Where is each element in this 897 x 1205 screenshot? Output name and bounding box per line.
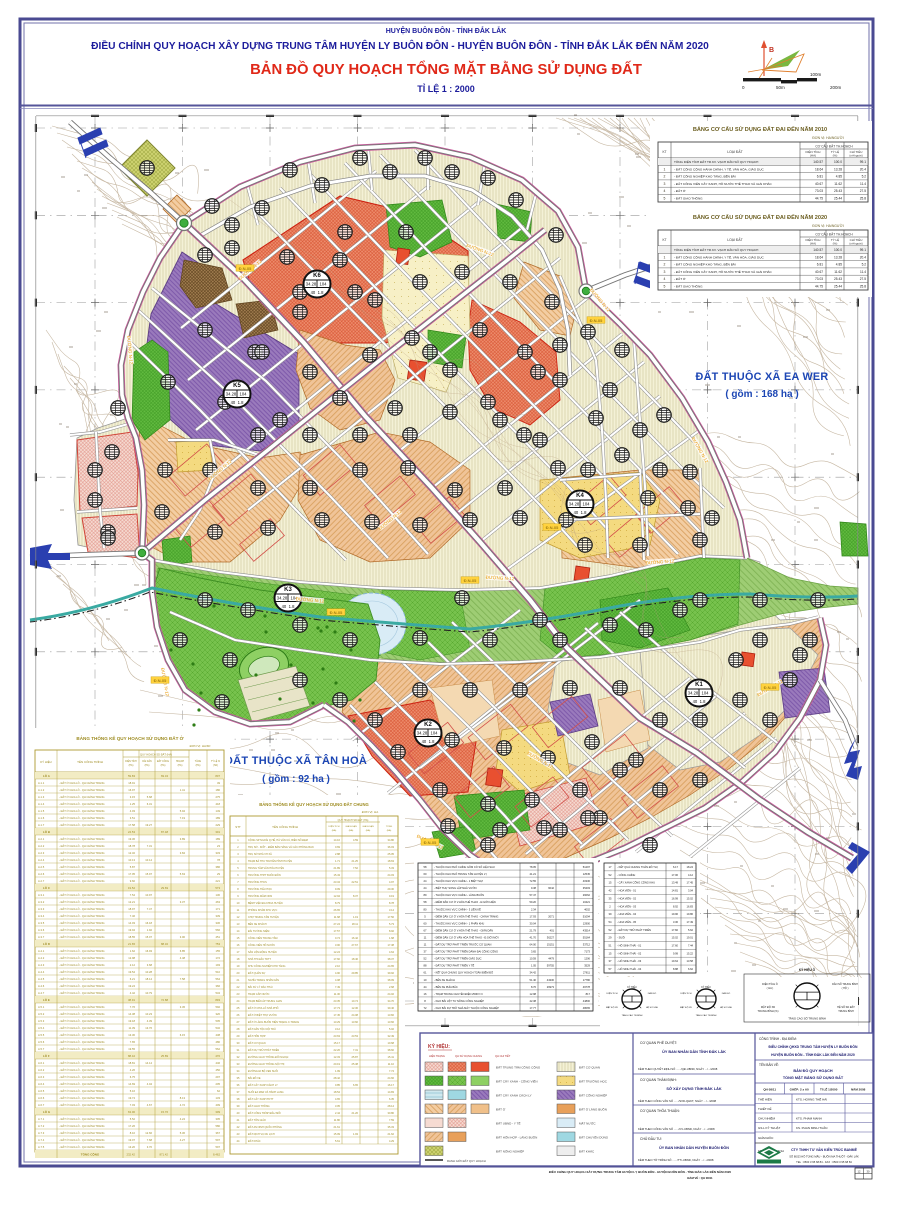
svg-text:49: 49	[217, 781, 220, 785]
svg-text:ĐƯỜNG GIAO THÔNG NỘI THỊ: ĐƯỜNG GIAO THÔNG NỘI THỊ	[248, 1063, 285, 1066]
svg-text:12.24: 12.24	[334, 950, 341, 954]
svg-text:A.2.7: A.2.7	[38, 879, 45, 883]
svg-text:A.6.5: A.6.5	[38, 1089, 45, 1093]
svg-text:5.2: 5.2	[862, 263, 867, 267]
svg-text:6042: 6042	[548, 886, 554, 890]
svg-text:149: 149	[216, 809, 221, 813]
svg-text:4.04: 4.04	[147, 1082, 153, 1086]
svg-text:- ĐẤT CÔNG NGHIỆP KHO TÀNG, BẾ: - ĐẤT CÔNG NGHIỆP KHO TÀNG, BẾN BÃI	[674, 174, 736, 179]
svg-text:10.97: 10.97	[145, 893, 152, 897]
svg-text:72: 72	[424, 1006, 427, 1010]
svg-text:0.85: 0.85	[335, 1083, 341, 1087]
svg-text:15.09: 15.09	[334, 1132, 341, 1136]
svg-text:193: 193	[216, 963, 221, 967]
svg-text:130: 130	[216, 893, 221, 897]
svg-text:63.00: 63.00	[128, 1110, 135, 1114]
svg-text:52: 52	[609, 873, 612, 877]
svg-text:19.52: 19.52	[128, 886, 135, 890]
svg-text:34.70: 34.70	[388, 999, 395, 1003]
svg-text:19.74: 19.74	[128, 1096, 135, 1100]
svg-text:( gồm : 168 ha ): ( gồm : 168 ha )	[725, 388, 798, 400]
svg-text:3.89: 3.89	[180, 837, 186, 841]
svg-text:ĐƯỜNG GIAO THÔNG ĐỐI NGOẠI: ĐƯỜNG GIAO THÔNG ĐỐI NGOẠI	[248, 1056, 289, 1059]
svg-text:566: 566	[216, 928, 221, 932]
svg-text:15151: 15151	[547, 943, 555, 947]
svg-text:( gồm : 92 ha ): ( gồm : 92 ha )	[262, 773, 330, 785]
svg-text:HUYỆN BUÔN ĐÔN - TỈNH ĐẮK LẮK: HUYỆN BUÔN ĐÔN - TỈNH ĐẮK LẮK	[386, 26, 507, 35]
svg-text:A.5.5: A.5.5	[38, 1033, 45, 1037]
svg-text:25.87: 25.87	[352, 1055, 359, 1059]
svg-text:10.74: 10.74	[352, 999, 359, 1003]
svg-text:2.68: 2.68	[389, 985, 395, 989]
svg-text:11: 11	[424, 943, 427, 947]
svg-text:8.37: 8.37	[353, 894, 359, 898]
svg-text:4.39: 4.39	[147, 1019, 153, 1023]
svg-text:73.03: 73.03	[815, 189, 823, 193]
svg-text:HUYỆN BUÔN ĐÔN - TỈNH ĐẮK LẮK: HUYỆN BUÔN ĐÔN - TỈNH ĐẮK LẮK ĐẾN NĂM 20…	[771, 1052, 855, 1057]
svg-text:LÔ D: LÔ D	[43, 941, 50, 946]
svg-text:- ĐẤT CÔNG VIÊN CÂY XANH, HỒ N: - ĐẤT CÔNG VIÊN CÂY XANH, HỒ NƯỚC THỂ TH…	[674, 269, 772, 274]
svg-text:TỔNG CỘNG: TỔNG CỘNG	[81, 1152, 100, 1157]
svg-text:18.24: 18.24	[687, 865, 694, 869]
svg-text:13.20: 13.20	[128, 1145, 135, 1149]
svg-text:ĐƠN VỊ: HA: ĐƠN VỊ: HA	[362, 810, 378, 814]
svg-text:10.59: 10.59	[530, 957, 537, 961]
svg-text:18.91: 18.91	[128, 781, 135, 785]
svg-text:MẬT ĐỘ XD: MẬT ĐỘ XD	[606, 1006, 619, 1009]
svg-text:44.75: 44.75	[815, 197, 823, 201]
svg-text:LÔ G: LÔ G	[43, 1109, 51, 1114]
svg-text:6.62: 6.62	[688, 967, 694, 971]
svg-text:CHỦ NHIỆM: CHỦ NHIỆM	[758, 1116, 776, 1121]
svg-text:ĐẤT CHUYÊN DÙNG: ĐẤT CHUYÊN DÙNG	[579, 1135, 609, 1140]
svg-text:505: 505	[216, 1019, 221, 1023]
svg-text:172: 172	[216, 956, 221, 960]
svg-text:51: 51	[609, 944, 612, 948]
svg-text:401: 401	[550, 928, 555, 932]
svg-text:BẢNG CƠ CẤU SỬ DỤNG ĐẤT ĐAI ĐẾ: BẢNG CƠ CẤU SỬ DỤNG ĐẤT ĐAI ĐẾN NĂM 2010	[693, 126, 827, 133]
svg-text:38.37: 38.37	[388, 957, 395, 961]
svg-text:8.92: 8.92	[673, 904, 679, 908]
svg-text:4.85: 4.85	[836, 263, 842, 267]
svg-text:232.42: 232.42	[126, 1153, 135, 1157]
svg-text:29: 29	[609, 936, 612, 940]
svg-text:16: 16	[424, 992, 427, 996]
svg-text:60: 60	[424, 921, 427, 925]
svg-text:A.7.2: A.7.2	[38, 1124, 45, 1128]
svg-text:18.46: 18.46	[352, 957, 359, 961]
svg-text:40 1.8: 40 1.8	[311, 290, 324, 295]
svg-text:25.05: 25.05	[388, 852, 395, 856]
svg-text:57: 57	[609, 967, 612, 971]
svg-text:60: 60	[424, 872, 427, 876]
svg-text:TRUNG BÌNH (%): TRUNG BÌNH (%)	[758, 1009, 779, 1013]
svg-text:5.16: 5.16	[130, 1089, 136, 1093]
svg-text:MẬT ĐỘ XD: MẬT ĐỘ XD	[680, 1006, 693, 1009]
svg-text:TỶ LỆ %: TỶ LỆ %	[211, 760, 220, 763]
svg-text:27.5: 27.5	[860, 277, 866, 281]
svg-text:THỂ HIỆN: THỂ HIỆN	[758, 1097, 772, 1102]
svg-text:BẢNG THỐNG KÊ QUY HOẠCH SỬ DỤN: BẢNG THỐNG KÊ QUY HOẠCH SỬ DỤNG ĐẤT CHUN…	[259, 802, 368, 807]
svg-text:13.76: 13.76	[145, 1026, 152, 1030]
svg-text:8.79: 8.79	[335, 901, 341, 905]
svg-text:6.65: 6.65	[353, 1083, 359, 1087]
svg-text:38.09: 38.09	[388, 978, 395, 982]
svg-text:99.1: 99.1	[860, 160, 866, 164]
svg-text:(HA): (HA)	[387, 829, 392, 832]
svg-text:5.87: 5.87	[130, 865, 136, 869]
svg-text:5.33: 5.33	[389, 866, 395, 870]
svg-text:11.68: 11.68	[334, 915, 341, 919]
svg-text:58: 58	[424, 865, 427, 869]
svg-text:25.89: 25.89	[161, 1054, 168, 1058]
svg-text:TỔNG: TỔNG	[386, 825, 393, 828]
svg-text:1.68: 1.68	[389, 936, 395, 940]
svg-text:(%): (%)	[833, 154, 838, 158]
svg-text:BẢNG CƠ CẤU SỬ DỤNG ĐẤT ĐAI ĐẾ: BẢNG CƠ CẤU SỬ DỤNG ĐẤT ĐAI ĐẾN NĂM 2020	[693, 214, 827, 221]
svg-text:34.28: 34.28	[417, 731, 428, 736]
svg-text:ĐẤT CƠ QUAN: ĐẤT CƠ QUAN	[579, 1065, 600, 1070]
svg-text:450: 450	[216, 1068, 221, 1072]
svg-text:KS. PHAN MINH TUẤN: KS. PHAN MINH TUẤN	[796, 1125, 827, 1130]
svg-text:ĐẤT THUỘC XÃ EA WER: ĐẤT THUỘC XÃ EA WER	[695, 370, 828, 383]
svg-text:19.24: 19.24	[128, 984, 135, 988]
svg-text:1206: 1206	[584, 957, 590, 961]
svg-text:39: 39	[609, 912, 612, 916]
svg-text:19.54: 19.54	[128, 970, 135, 974]
svg-text:ĐÀI TƯỞNG NIỆM: ĐÀI TƯỞNG NIỆM	[248, 930, 269, 933]
svg-text:16.99: 16.99	[672, 896, 679, 900]
svg-text:64.00: 64.00	[530, 943, 537, 947]
svg-text:4.64: 4.64	[389, 950, 395, 954]
svg-text:480: 480	[216, 1040, 221, 1044]
svg-text:205: 205	[216, 1082, 221, 1086]
svg-text:18.11: 18.11	[352, 922, 359, 926]
svg-text:320: 320	[216, 1012, 221, 1016]
svg-text:2: 2	[664, 263, 666, 267]
svg-text:ĐẤT Ở LÀNG BUÔN HIỆN TRẠNG C.T: ĐẤT Ở LÀNG BUÔN HIỆN TRẠNG C.TRANG	[248, 1021, 299, 1024]
svg-text:TÊN CÔNG TRÌNH: TÊN CÔNG TRÌNH	[272, 824, 298, 829]
svg-text:TÊN BẢN VẼ:: TÊN BẢN VẼ:	[759, 1062, 779, 1067]
svg-text:42: 42	[609, 889, 612, 893]
svg-text:6.81: 6.81	[817, 263, 823, 267]
svg-text:ĐẤT DỰ TRỮ PHÁT TRIỂN: ĐẤT DỰ TRỮ PHÁT TRIỂN	[248, 1049, 279, 1052]
svg-text:12.32: 12.32	[128, 851, 135, 855]
svg-text:5.94: 5.94	[180, 809, 186, 813]
svg-text:(m²/người): (m²/người)	[849, 154, 862, 158]
svg-text:ĐẤT CƠ QUAN: ĐẤT CƠ QUAN	[248, 1042, 266, 1045]
svg-text:5: 5	[664, 285, 666, 289]
svg-text:ĐƠN VỊ: HA/NGƯỜI: ĐƠN VỊ: HA/NGƯỜI	[812, 223, 843, 228]
svg-text:29: 29	[217, 872, 220, 876]
svg-text:221: 221	[216, 879, 221, 883]
svg-text:SÂN VẬN ĐỘNG HUYỆN: SÂN VẬN ĐỘNG HUYỆN	[248, 951, 277, 954]
svg-text:58: 58	[424, 900, 427, 904]
svg-text:3: 3	[664, 270, 666, 274]
svg-text:HỆ SỐ SDĐ: HỆ SỐ SDĐ	[646, 1006, 658, 1009]
svg-text:HỆ SỐ SDĐ: HỆ SỐ SDĐ	[720, 1006, 732, 1009]
svg-text:A.7.1: A.7.1	[38, 1117, 45, 1121]
svg-text:11.39: 11.39	[128, 1026, 135, 1030]
svg-text:11.80: 11.80	[334, 1118, 341, 1122]
svg-text:15: 15	[609, 881, 612, 885]
svg-text:893: 893	[215, 998, 220, 1002]
svg-text:6.21: 6.21	[130, 977, 136, 981]
svg-text:TRẠM CẤP NƯỚC: TRẠM CẤP NƯỚC	[248, 993, 270, 996]
svg-text:GIAI ĐOẠN: GIAI ĐOẠN	[362, 825, 374, 828]
svg-text:4: 4	[664, 189, 666, 193]
svg-text:6.35: 6.35	[389, 1097, 395, 1101]
svg-text:1.05: 1.05	[531, 964, 537, 968]
svg-text:A.6.4: A.6.4	[38, 1082, 45, 1086]
svg-text:29.85: 29.85	[352, 971, 359, 975]
svg-text:78: 78	[217, 858, 220, 862]
svg-text:73.03: 73.03	[815, 277, 823, 281]
svg-text:229: 229	[216, 823, 221, 827]
svg-text:6.81: 6.81	[817, 175, 823, 179]
svg-text:34.28: 34.28	[688, 691, 699, 696]
svg-text:17: 17	[609, 865, 612, 869]
svg-text:SỞ XÂY DỰNG TỈNH ĐẮK LẮK: SỞ XÂY DỰNG TỈNH ĐẮK LẮK	[666, 1086, 722, 1091]
svg-text:13.29: 13.29	[334, 1020, 341, 1024]
svg-text:24.66: 24.66	[388, 1076, 395, 1080]
svg-text:BẢNG THỐNG KÊ QUY HOẠCH SỬ DỤN: BẢNG THỐNG KÊ QUY HOẠCH SỬ DỤNG ĐẤT Ở	[76, 734, 183, 741]
svg-text:A.6.2: A.6.2	[38, 1068, 45, 1072]
svg-text:CỘNG SP NGOÀI Q.HẾ, HÀ VĂN CỦ,: CỘNG SP NGOÀI Q.HẾ, HÀ VĂN CỦ, BIỂN SỐ Đ…	[248, 839, 308, 842]
svg-text:( HỘ ): ( HỘ )	[842, 987, 849, 990]
svg-text:2.10: 2.10	[335, 964, 341, 968]
svg-text:KÈM THEO CÔNG VĂN SỐ ....../SX: KÈM THEO CÔNG VĂN SỐ ....../SXD-QHKT, NG…	[638, 1098, 717, 1103]
svg-text:TỔNG DIỆN TÍCH ĐẤT TR.KV. VẠCH: TỔNG DIỆN TÍCH ĐẤT TR.KV. VẠCH DẤN SỐ QU…	[674, 247, 758, 252]
svg-text:25.8: 25.8	[860, 285, 866, 289]
svg-text:19.94: 19.94	[128, 928, 135, 932]
svg-text:ỦY BAN NHÂN DÂN HUYỆN BUÔN ĐÔN: ỦY BAN NHÂN DÂN HUYỆN BUÔN ĐÔN	[659, 1145, 729, 1150]
svg-text:18.78: 18.78	[128, 844, 135, 848]
svg-text:A.5.1: A.5.1	[38, 1005, 45, 1009]
svg-text:6.31: 6.31	[147, 802, 153, 806]
svg-text:12.36: 12.36	[352, 1006, 359, 1010]
svg-text:Đ.N-05: Đ.N-05	[464, 578, 477, 583]
svg-text:2.44: 2.44	[335, 1111, 341, 1115]
svg-text:4.27: 4.27	[180, 1138, 186, 1142]
svg-text:(HA): (HA)	[810, 154, 816, 158]
svg-text:A.2.4: A.2.4	[38, 858, 45, 862]
svg-text:59755: 59755	[547, 964, 555, 968]
svg-text:TEL : 0500 3 95 68 84 - FAX :: TEL : 0500 3 95 68 84 - FAX : 0500 3 95 …	[796, 1160, 852, 1164]
svg-text:17.06: 17.06	[672, 873, 679, 877]
svg-text:5.63: 5.63	[180, 872, 186, 876]
svg-text:200m: 200m	[830, 85, 842, 90]
svg-text:A.4.7: A.4.7	[38, 991, 45, 995]
svg-text:A.1.4: A.1.4	[38, 802, 45, 806]
svg-text:15.41: 15.41	[388, 1055, 395, 1059]
svg-text:A.5.2: A.5.2	[38, 1012, 45, 1016]
svg-text:TẦNG CAO TR.BÌNH: TẦNG CAO TR.BÌNH	[622, 1014, 643, 1017]
svg-text:40.67: 40.67	[815, 270, 823, 274]
svg-text:15.76: 15.76	[161, 1110, 168, 1114]
svg-text:16.97: 16.97	[128, 788, 135, 792]
svg-text:(HA): (HA)	[178, 764, 183, 767]
svg-text:CTY TNHH TƯ VẤN KIẾN TRÚC BANM: CTY TNHH TƯ VẤN KIẾN TRÚC BANMÊ	[791, 1147, 858, 1152]
svg-text:A.3.2: A.3.2	[38, 900, 45, 904]
svg-text:2: 2	[664, 175, 666, 179]
svg-text:17.93: 17.93	[530, 914, 537, 918]
svg-text:CƠ CẤU ĐẤT TH.HOẠCH: CƠ CẤU ĐẤT TH.HOẠCH	[815, 145, 853, 149]
svg-text:339: 339	[216, 914, 221, 918]
svg-text:ĐIỀU CHỈNH QUY HOẠCH XÂY DỰNG: ĐIỀU CHỈNH QUY HOẠCH XÂY DỰNG TRUNG TÂM …	[549, 1169, 732, 1174]
svg-text:17.05: 17.05	[128, 872, 135, 876]
svg-text:21.79: 21.79	[530, 928, 537, 932]
svg-text:36.03: 36.03	[388, 845, 395, 849]
svg-text:BẢN ĐỒ QUY HOẠCH TỔNG MẶT BẰNG: BẢN ĐỒ QUY HOẠCH TỔNG MẶT BẰNG SỬ DỤNG Đ…	[250, 60, 642, 78]
svg-text:38.60: 38.60	[388, 1048, 395, 1052]
svg-text:10: 10	[424, 978, 427, 982]
svg-text:(HA): (HA)	[332, 829, 337, 832]
svg-text:ĐẤT DÂN TỘC NỘI TRÚ: ĐẤT DÂN TỘC NỘI TRÚ	[248, 1028, 276, 1031]
svg-text:510: 510	[216, 970, 221, 974]
svg-text:438: 438	[216, 1033, 221, 1037]
svg-text:TRƯỜNG THPT BUÔN ĐÔN: TRƯỜNG THPT BUÔN ĐÔN	[248, 874, 281, 877]
svg-text:TẦNG: TẦNG	[195, 760, 202, 763]
svg-text:32.49: 32.49	[388, 1034, 395, 1038]
svg-text:49778: 49778	[583, 985, 591, 989]
svg-text:41.70: 41.70	[530, 936, 537, 940]
svg-text:DÂN SỐ: DÂN SỐ	[722, 992, 731, 995]
svg-text:ĐẤT NÔNG NGHIỆP: ĐẤT NÔNG NGHIỆP	[496, 1149, 524, 1154]
svg-text:A.4.3: A.4.3	[38, 963, 45, 967]
svg-text:61: 61	[424, 971, 427, 975]
svg-text:4.67: 4.67	[147, 1103, 153, 1107]
svg-text:4.29: 4.29	[389, 1139, 395, 1143]
svg-text:40 1.8: 40 1.8	[282, 604, 295, 609]
svg-text:297: 297	[216, 1075, 221, 1079]
svg-text:6.15: 6.15	[180, 1033, 186, 1037]
svg-text:ĐẤT CÔNG TRÌNH ĐẦU MỐI: ĐẤT CÔNG TRÌNH ĐẦU MỐI	[248, 1112, 281, 1115]
svg-text:15.07: 15.07	[145, 935, 152, 939]
svg-text:17.77: 17.77	[530, 1006, 537, 1010]
svg-text:2.12: 2.12	[130, 963, 136, 967]
svg-text:171: 171	[216, 907, 221, 911]
svg-text:13.28: 13.28	[834, 167, 842, 171]
svg-text:ĐẤT HỖN HỢP - LÀNG BUÔN: ĐẤT HỖN HỢP - LÀNG BUÔN	[496, 1135, 537, 1140]
svg-text:LÔ B: LÔ B	[43, 829, 50, 834]
svg-text:3: 3	[664, 182, 666, 186]
svg-text:19.27: 19.27	[145, 823, 152, 827]
svg-text:4.48: 4.48	[180, 956, 186, 960]
svg-text:40336: 40336	[583, 879, 591, 883]
svg-text:333: 333	[216, 851, 221, 855]
svg-text:TRẠM BIẾN ÁP TRUNG GIAN: TRẠM BIẾN ÁP TRUNG GIAN	[248, 1000, 282, 1003]
svg-text:13.66: 13.66	[388, 1020, 395, 1024]
svg-text:44800: 44800	[583, 999, 591, 1003]
svg-text:88: 88	[424, 964, 427, 968]
svg-text:24.08: 24.08	[352, 1013, 359, 1017]
svg-text:18.54: 18.54	[334, 1090, 341, 1094]
svg-text:7.49: 7.49	[335, 985, 341, 989]
svg-text:ĐẤT CÂY XANH CÁCH LY: ĐẤT CÂY XANH CÁCH LY	[248, 1084, 278, 1087]
svg-text:- ĐẤT CÔNG CỘNG HÀNH CHÍNH, Y: - ĐẤT CÔNG CỘNG HÀNH CHÍNH, Y TẾ, VĂN HÓ…	[674, 254, 764, 259]
svg-text:8.462: 8.462	[213, 1153, 220, 1157]
svg-text:69.34: 69.34	[161, 774, 168, 778]
svg-text:27611: 27611	[583, 971, 591, 975]
svg-text:CÔNG VIÊN TRUNG TÂM: CÔNG VIÊN TRUNG TÂM	[248, 937, 278, 940]
svg-text:104: 104	[240, 392, 248, 397]
svg-text:A.2.5: A.2.5	[38, 865, 45, 869]
svg-text:305: 305	[216, 1117, 221, 1121]
svg-text:QH 08/11: QH 08/11	[763, 1088, 776, 1092]
svg-text:1: 1	[664, 167, 666, 171]
svg-text:3.45: 3.45	[180, 1005, 186, 1009]
svg-text:ĐẤT HỖN HỢP: ĐẤT HỖN HỢP	[248, 1035, 266, 1038]
svg-text:99.1: 99.1	[860, 248, 866, 252]
svg-text:18.14: 18.14	[145, 977, 152, 981]
svg-text:DIỆN TÍCH: DIỆN TÍCH	[329, 825, 340, 828]
svg-text:17.60: 17.60	[334, 957, 341, 961]
svg-text:807: 807	[215, 774, 220, 778]
svg-text:A.4.4: A.4.4	[38, 970, 45, 974]
svg-text:180: 180	[216, 788, 221, 792]
svg-text:TÊN CÔNG TRÌNH: TÊN CÔNG TRÌNH	[77, 759, 103, 764]
svg-text:CƠ QUAN PHÊ DUYỆT:: CƠ QUAN PHÊ DUYỆT:	[640, 1040, 677, 1045]
svg-text:NĂM 2008: NĂM 2008	[851, 1087, 866, 1092]
svg-text:1.71: 1.71	[335, 859, 341, 863]
svg-text:Đ.N-05: Đ.N-05	[424, 840, 437, 845]
svg-text:K6: K6	[313, 273, 321, 279]
svg-text:0.74: 0.74	[335, 936, 341, 940]
svg-text:301: 301	[215, 830, 220, 834]
svg-text:59.20: 59.20	[530, 900, 537, 904]
svg-text:4.85: 4.85	[836, 175, 842, 179]
svg-text:25.8: 25.8	[860, 197, 866, 201]
svg-text:17.45: 17.45	[334, 1013, 341, 1017]
svg-text:580: 580	[216, 1124, 221, 1128]
svg-text:RANH GIỚI ĐẤT QUY HOẠCH: RANH GIỚI ĐẤT QUY HOẠCH	[447, 1158, 486, 1163]
svg-text:- ĐẤT CÔNG NGHIỆP KHO TÀNG, BẾ: - ĐẤT CÔNG NGHIỆP KHO TÀNG, BẾN BÃI	[674, 262, 736, 267]
svg-text:16.18: 16.18	[145, 921, 152, 925]
svg-text:24.03: 24.03	[388, 873, 395, 877]
svg-text:817: 817	[586, 992, 591, 996]
svg-text:LÔ A: LÔ A	[43, 773, 51, 778]
svg-text:KTS. HOÀNG THẾ HẢI: KTS. HOÀNG THẾ HẢI	[796, 1097, 827, 1102]
svg-text:KÝ HIỆU: KÝ HIỆU	[701, 986, 711, 989]
svg-text:3.65: 3.65	[531, 950, 537, 954]
svg-text:3.37: 3.37	[180, 900, 186, 904]
svg-text:35.33: 35.33	[388, 1125, 395, 1129]
svg-text:13.28: 13.28	[834, 255, 842, 259]
svg-text:ĐẤT CÂY XANH - CÔNG VIÊN: ĐẤT CÂY XANH - CÔNG VIÊN	[496, 1079, 538, 1084]
svg-text:25.43: 25.43	[834, 277, 842, 281]
svg-text:6.85: 6.85	[180, 949, 186, 953]
svg-text:20.19: 20.19	[334, 1062, 341, 1066]
svg-text:19.01: 19.01	[687, 936, 694, 940]
svg-text:7.31: 7.31	[353, 1048, 359, 1052]
svg-text:11: 11	[424, 936, 427, 940]
svg-text:48065: 48065	[583, 1006, 591, 1010]
svg-text:4.12: 4.12	[688, 873, 694, 877]
svg-text:DIỆN TÍCH: DIỆN TÍCH	[125, 760, 137, 763]
svg-text:(HA): (HA)	[810, 242, 816, 246]
svg-text:10.68: 10.68	[388, 1041, 395, 1045]
svg-text:26062: 26062	[583, 893, 591, 897]
svg-text:21.26: 21.26	[352, 1111, 359, 1115]
svg-text:10.28: 10.28	[145, 970, 152, 974]
svg-text:17.45: 17.45	[687, 881, 694, 885]
svg-text:7.31: 7.31	[147, 844, 153, 848]
svg-text:44.75: 44.75	[815, 285, 823, 289]
svg-text:44330: 44330	[547, 978, 555, 982]
svg-text:72.88: 72.88	[161, 998, 168, 1002]
svg-text:CƠ QUAN THẨM ĐỊNH:: CƠ QUAN THẨM ĐỊNH:	[640, 1077, 677, 1082]
